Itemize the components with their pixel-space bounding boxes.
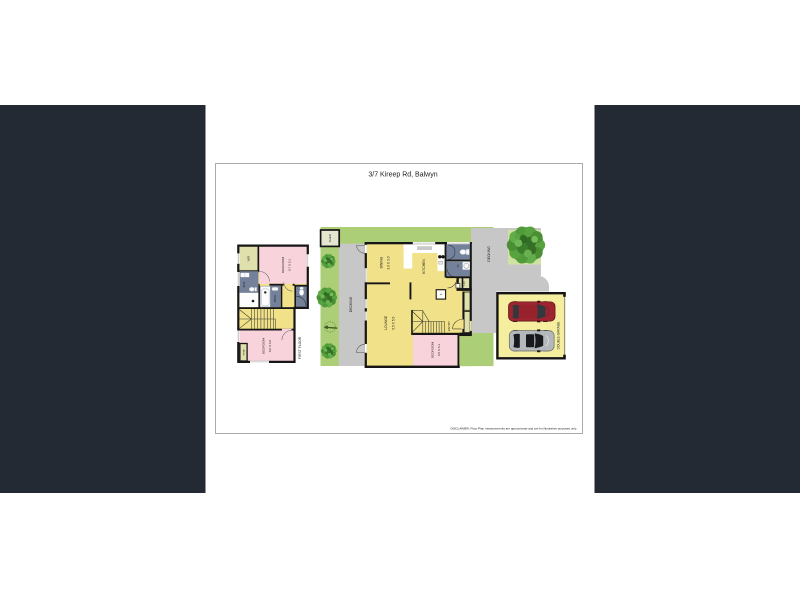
svg-text:BEDROOM: BEDROOM xyxy=(281,257,285,273)
svg-text:ENS: ENS xyxy=(242,281,246,287)
svg-text:3.6 X 3.6: 3.6 X 3.6 xyxy=(268,340,272,353)
svg-text:DECKING: DECKING xyxy=(349,296,353,312)
svg-text:3.5 X 3.1: 3.5 X 3.1 xyxy=(437,344,441,357)
svg-text:FIRST FLOOR: FIRST FLOOR xyxy=(298,336,302,359)
svg-text:3.7 X 3.1: 3.7 X 3.1 xyxy=(288,259,292,272)
svg-text:WC: WC xyxy=(458,263,460,267)
svg-text:BATH: BATH xyxy=(273,295,277,302)
svg-text:DECKING: DECKING xyxy=(487,246,491,262)
svg-text:ROBE: ROBE xyxy=(243,349,245,356)
svg-text:DINING: DINING xyxy=(380,256,384,268)
svg-text:WIR: WIR xyxy=(247,256,251,262)
svg-text:BEDROOM: BEDROOM xyxy=(262,338,266,354)
svg-text:SHED: SHED xyxy=(328,233,332,242)
svg-text:BEDROOM: BEDROOM xyxy=(430,341,434,357)
svg-text:DOUBLE GARAGE: DOUBLE GARAGE xyxy=(557,322,561,350)
svg-text:LDY: LDY xyxy=(464,281,466,286)
svg-text:LOUNGE: LOUNGE xyxy=(384,315,388,330)
svg-text:ENTRY: ENTRY xyxy=(447,321,451,331)
svg-text:5.5 X 5.5: 5.5 X 5.5 xyxy=(391,316,395,329)
svg-text:DISCLAIMER: Floor Plan measure: DISCLAIMER: Floor Plan measurements are … xyxy=(451,427,578,431)
svg-text:KITCHEN: KITCHEN xyxy=(422,259,426,274)
svg-text:3/7 Kireep Rd, Balwyn: 3/7 Kireep Rd, Balwyn xyxy=(368,172,437,179)
svg-text:3.0 X 3.0: 3.0 X 3.0 xyxy=(386,256,390,269)
